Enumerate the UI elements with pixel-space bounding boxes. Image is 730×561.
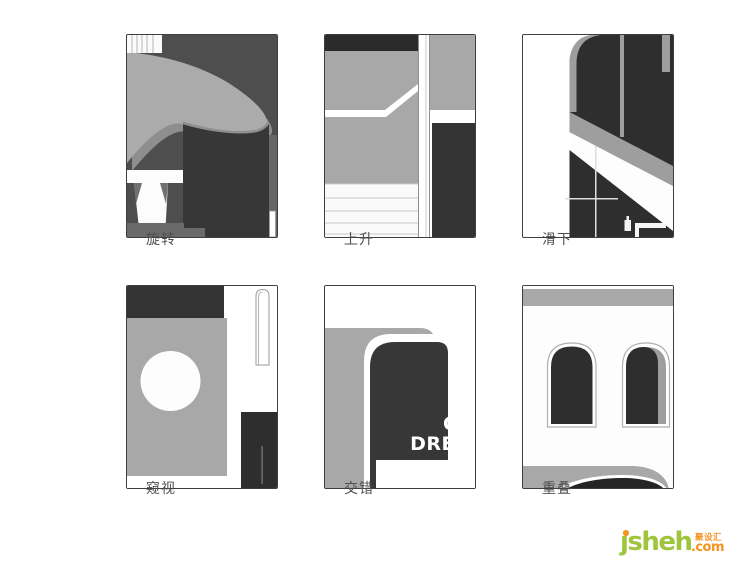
- rise-illustration: [325, 35, 475, 237]
- rotate-illustration: [127, 35, 277, 237]
- peek-illustration: [127, 286, 277, 488]
- poster-canvas: C DRE 旋转 上升 滑下 窥视 交错 重叠 ȷsheh 聚设汇 .com: [0, 0, 730, 561]
- interlace-illustration: C DRE: [325, 286, 475, 488]
- logo-tld: .com: [691, 540, 724, 555]
- logo-wordmark: ȷsheh: [620, 527, 692, 557]
- panel-rotate: [126, 34, 278, 238]
- panel-interlace: C DRE: [324, 285, 476, 489]
- caption-overlap: 重叠: [482, 478, 632, 498]
- logo-j-dot-icon: [623, 530, 629, 536]
- caption-interlace: 交错: [284, 478, 434, 498]
- overlap-illustration: [523, 286, 673, 488]
- panel-slide-down: [522, 34, 674, 238]
- caption-peek: 窥视: [86, 478, 236, 498]
- caption-slide-down: 滑下: [482, 229, 632, 249]
- panel-overlap: [522, 285, 674, 489]
- caption-rise: 上升: [284, 229, 434, 249]
- jsheh-logo: ȷsheh 聚设汇 .com: [620, 527, 724, 559]
- slide-down-illustration: [523, 35, 673, 237]
- panel-rise: [324, 34, 476, 238]
- caption-rotate: 旋转: [86, 229, 236, 249]
- panel-peek: [126, 285, 278, 489]
